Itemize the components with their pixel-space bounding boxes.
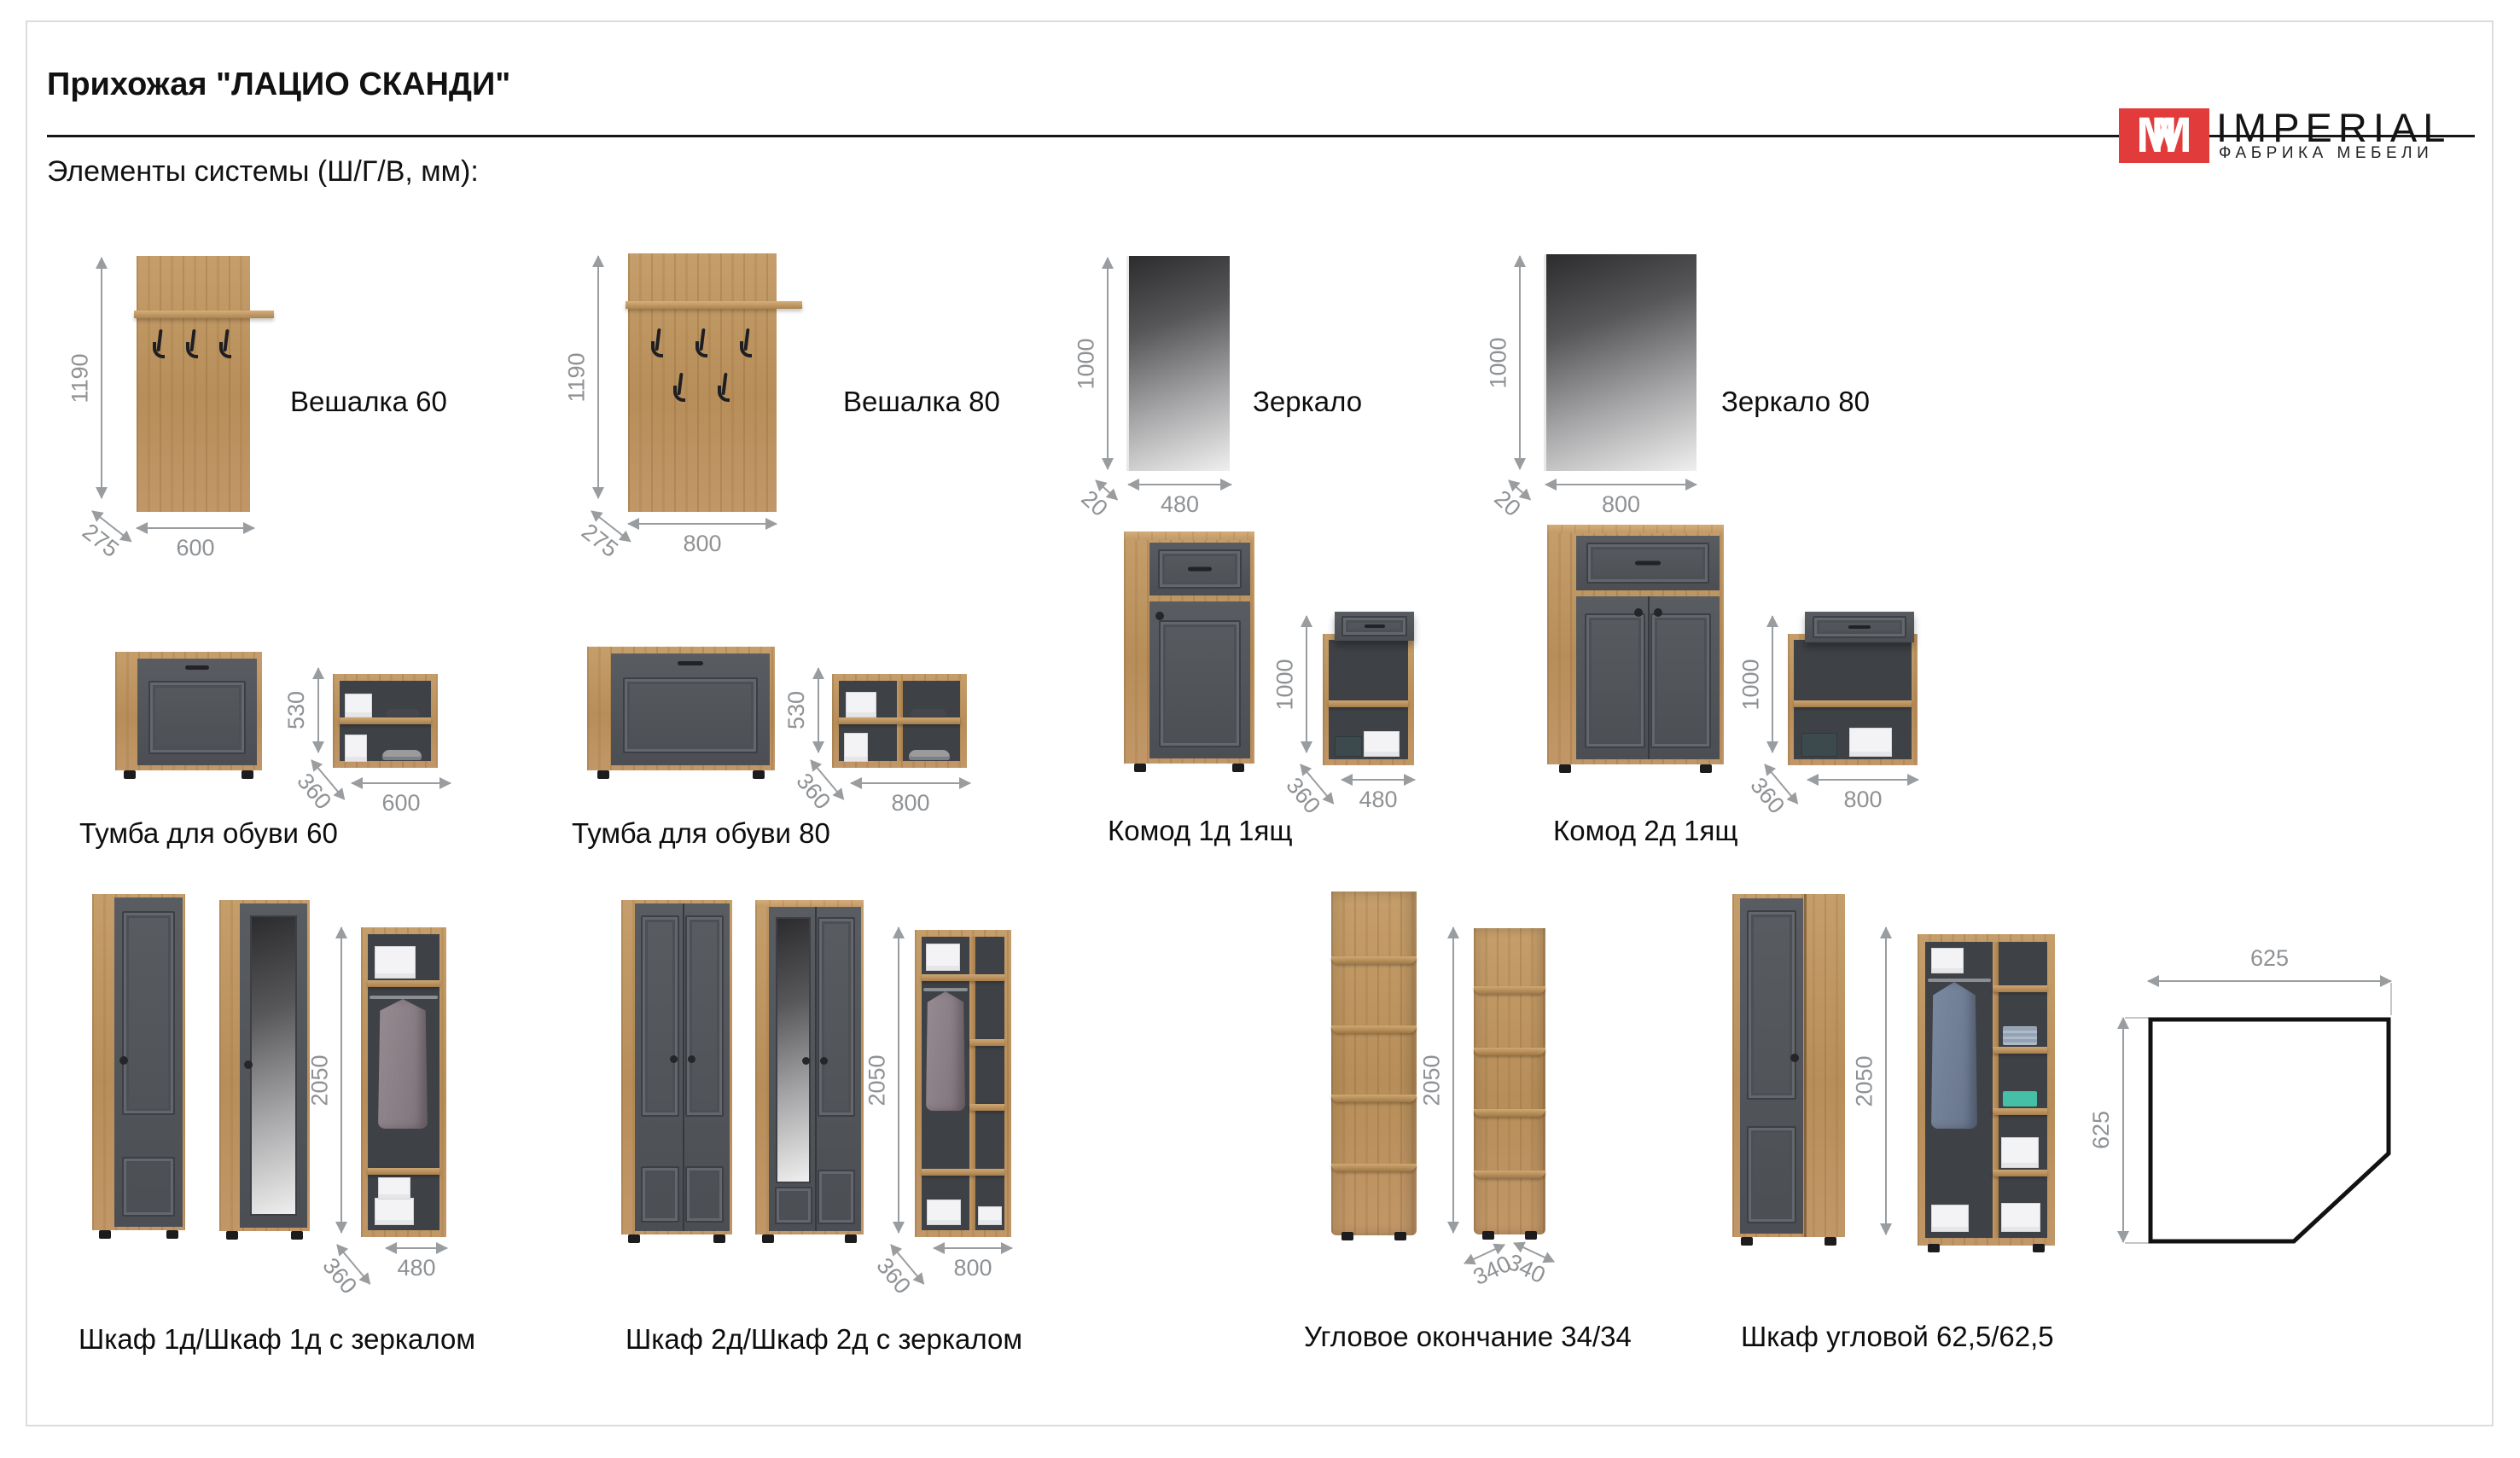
width-dim: 480 [386,1247,447,1249]
door-molding [641,1166,679,1223]
corner-shelf-unit-drawing [1474,928,1545,1234]
door-knob [670,1055,678,1063]
item-label: Тумба для обуви 60 [79,817,338,850]
door-molding [122,1157,175,1217]
storage-box [1801,733,1837,757]
foot [1928,1244,1940,1252]
foot [1525,1231,1537,1240]
storage-box [1931,948,1964,973]
height-dim: 2050 [1452,927,1454,1233]
storage-box [978,1206,1002,1225]
foot [226,1231,238,1240]
item-label: Зеркало [1253,386,1362,418]
seat-pad [835,663,963,674]
storage-box [378,1177,410,1200]
clothes-stack [2003,1091,2037,1107]
shelf [839,717,960,724]
door-molding [148,681,246,754]
door-molding [1747,1126,1796,1223]
hook-icon [695,328,708,361]
hook-icon [218,329,232,362]
slippers [386,709,420,717]
komod-1d-closed-drawing [1124,532,1254,774]
open-drawer [1805,612,1914,642]
veshalka-60-drawing [137,256,250,512]
width-dim: 480 [1128,484,1231,485]
shelf [1794,700,1912,707]
seat-pad [587,623,775,647]
hanging-rod [370,996,438,999]
drawer-handle [1365,624,1385,628]
shelf [922,1169,1004,1176]
door-handle [678,661,703,665]
foot [124,770,136,779]
door-knob [1654,608,1662,617]
item-label: Зеркало 80 [1721,386,1870,418]
doors [635,903,730,1231]
storage-box [1931,1205,1969,1232]
height-dim: 1000 [1772,616,1773,752]
hook-icon [672,373,686,405]
storage-box [846,692,876,717]
foot [762,1234,774,1243]
door-molding [818,1170,855,1224]
height-dim: 1190 [101,258,102,498]
item-label: Вешалка 60 [290,386,447,418]
shelf [1331,1095,1417,1102]
door-molding [1159,620,1241,747]
foot [1700,764,1712,773]
corner-shelf-unit-drawing [1331,892,1417,1235]
foot [2033,1244,2045,1252]
extension-line [2125,1017,2149,1019]
height-dim: 530 [818,668,819,752]
foot [628,1234,640,1243]
drawer-handle [1848,625,1871,629]
door-knob [1790,1054,1799,1062]
door-knob [1155,612,1164,620]
hook-icon [717,373,730,405]
storage-box [2001,1203,2040,1232]
shelf [1993,985,2047,992]
tumba-60-open-drawing [333,663,438,768]
shelf [1474,1170,1545,1178]
catalog-sheet: Прихожая "ЛАЦИО СКАНДИ" Элементы системы… [0,0,2520,1458]
seat-pad [115,630,262,652]
hook-icon [185,329,199,362]
height-dim: 1190 [597,256,599,498]
storage-box [2001,1137,2039,1168]
shelf [1993,1170,2047,1176]
height-dim: 530 [317,668,319,752]
storage-box [375,946,416,979]
top-panel [1124,532,1254,540]
foot [166,1230,178,1239]
front-door [611,653,770,765]
shkaf-2d-open-drawing [915,930,1011,1237]
door-molding [818,917,855,1117]
shkaf-1d-open-drawing [361,927,446,1237]
door-molding [685,915,724,1117]
item-label: Шкаф 1д/Шкаф 1д с зеркалом [79,1323,475,1356]
shelf [368,1168,439,1175]
shelf [1474,986,1545,994]
shelf [1331,1164,1417,1171]
foot [713,1234,725,1243]
hook-icon [152,329,166,362]
door-mirror [776,917,811,1183]
coat [1931,982,1977,1129]
brand-tagline: ФАБРИКА МЕБЕЛИ [2219,144,2433,163]
komod-2d-closed-drawing [1547,525,1724,775]
door-knob [119,1056,128,1065]
door-gap [683,903,684,1231]
foot [845,1234,857,1243]
clothes-stack [2003,1026,2037,1045]
door-mirror [250,915,297,1216]
title-underline [47,135,2475,137]
door-gap [815,907,817,1231]
width-dim: 800 [1807,779,1918,781]
hanging-rod [1928,979,1991,982]
storage-box [1849,728,1892,757]
door [114,897,183,1227]
edge-line [1804,894,1807,1237]
doors [1576,596,1720,759]
door-molding [641,915,679,1117]
drawer-front [1576,536,1720,590]
storage-box [1335,736,1362,757]
height-dim: 1000 [1519,256,1521,469]
shelf [1474,1048,1545,1055]
foot [1741,1237,1753,1246]
width-dim: 480 [1341,779,1415,781]
foot [1482,1231,1494,1240]
shkaf-2d-closed-drawing [621,900,732,1243]
shelf [1329,700,1408,707]
drawer-front [1149,543,1250,595]
corner-wardrobe-plan-diagram [2148,1017,2391,1244]
width-dim: 600 [137,527,254,529]
width-dim: 800 [1545,484,1696,485]
shkaf-2d-mirror-drawing [755,900,864,1243]
height-dim: 2050 [340,927,342,1233]
zerkalo-drawing [1129,256,1230,471]
door [1740,898,1803,1234]
top-panel [1547,525,1724,533]
corner-wardrobe-closed-drawing [1732,894,1845,1246]
shkaf-1d-mirror-drawing [219,900,310,1240]
height-dim: 1000 [1107,258,1109,469]
seat-pad [336,663,434,674]
height-dim: 2050 [1885,927,1887,1234]
door-knob [1634,608,1643,617]
door-molding [775,1187,812,1224]
tumba-80-closed-drawing [587,623,775,779]
storage-box [844,733,868,762]
zerkalo-80-drawing [1546,254,1696,471]
door-molding [1650,613,1711,748]
shelf [969,1104,1004,1111]
shelf [1331,1025,1417,1033]
veshalka-80-drawing [628,253,777,512]
foot [1134,764,1146,772]
komod-1d-open-drawing [1323,612,1414,765]
item-label: Комод 2д 1ящ [1553,815,1737,847]
shelf [1993,1108,2047,1115]
item-label: Тумба для обуви 80 [572,817,830,850]
item-label: Угловое окончание 34/34 [1304,1321,1632,1353]
hook-icon [739,328,753,361]
plan-width-dim: 625 [2148,980,2391,982]
width-dim: 800 [934,1247,1012,1249]
door-molding [1747,910,1796,1100]
shelf [1331,956,1417,964]
drawer-handle [1188,567,1212,572]
page-title: Прихожая "ЛАЦИО СКАНДИ" [47,67,510,103]
door-knob [688,1055,695,1063]
shelf [368,980,439,987]
storage-box [345,694,372,717]
shelf [922,974,1004,981]
sneakers [382,750,422,760]
front-door [137,659,257,765]
item-label: Вешалка 80 [843,386,1000,418]
storage-box [927,1200,961,1225]
door-molding [122,911,175,1115]
mirror-door [240,903,307,1228]
foot [99,1230,111,1239]
foot [242,770,253,779]
sneakers [909,750,950,760]
width-dim: 600 [352,782,451,784]
foot [1559,764,1571,773]
door-molding [1585,613,1645,748]
page-subtitle: Элементы системы (Ш/Г/В, мм): [47,155,479,189]
shelf [969,1039,1004,1046]
hanging-rod [923,988,968,991]
hook-icon [650,328,664,361]
foot [1232,764,1244,772]
shkaf-1d-closed-drawing [92,894,185,1239]
foot [1394,1232,1406,1240]
door-knob [244,1060,253,1069]
drawer-handle [1635,561,1661,566]
door-gap [1648,596,1650,759]
door-molding [685,1166,724,1223]
height-dim: 1000 [1306,616,1307,752]
height-dim: 2050 [898,927,899,1233]
coat [378,999,428,1129]
komod-2d-open-drawing [1788,612,1918,765]
storage-box [926,944,960,971]
shelf [1474,1109,1545,1117]
imperial-logo-icon: MM [2119,108,2209,163]
top-panel [755,900,864,907]
shelf [340,717,431,724]
extension-line [2390,983,2392,1015]
item-label: Шкаф 2д/Шкаф 2д с зеркалом [626,1323,1022,1356]
storage-box [345,735,367,762]
width-dim: 800 [851,782,970,784]
doors [769,907,861,1231]
slippers [911,709,946,717]
door [1149,601,1250,758]
corner-wardrobe-open-drawing [1918,934,2055,1246]
tumba-80-open-drawing [832,663,967,768]
foot [753,770,765,779]
door-knob [802,1057,810,1065]
shelf [626,301,802,309]
foot [291,1231,303,1240]
door-handle [185,665,209,670]
door-molding [623,677,758,753]
foot [1825,1237,1836,1246]
item-label: Шкаф угловой 62,5/62,5 [1741,1321,2054,1353]
foot [597,770,609,779]
extension-line [2125,1242,2149,1244]
foot [1341,1232,1353,1240]
storage-box [1364,731,1400,757]
item-label: Комод 1д 1ящ [1108,815,1292,847]
tumba-60-closed-drawing [115,630,262,779]
logo-letter: M [2151,111,2192,160]
door-knob [820,1057,828,1065]
shelf [134,311,274,318]
coat [926,991,965,1111]
storage-box [375,1198,414,1225]
open-drawer [1335,612,1414,641]
shelf [1993,1047,2047,1054]
width-dim: 800 [628,523,777,525]
plan-depth-dim: 625 [2122,1018,2124,1242]
